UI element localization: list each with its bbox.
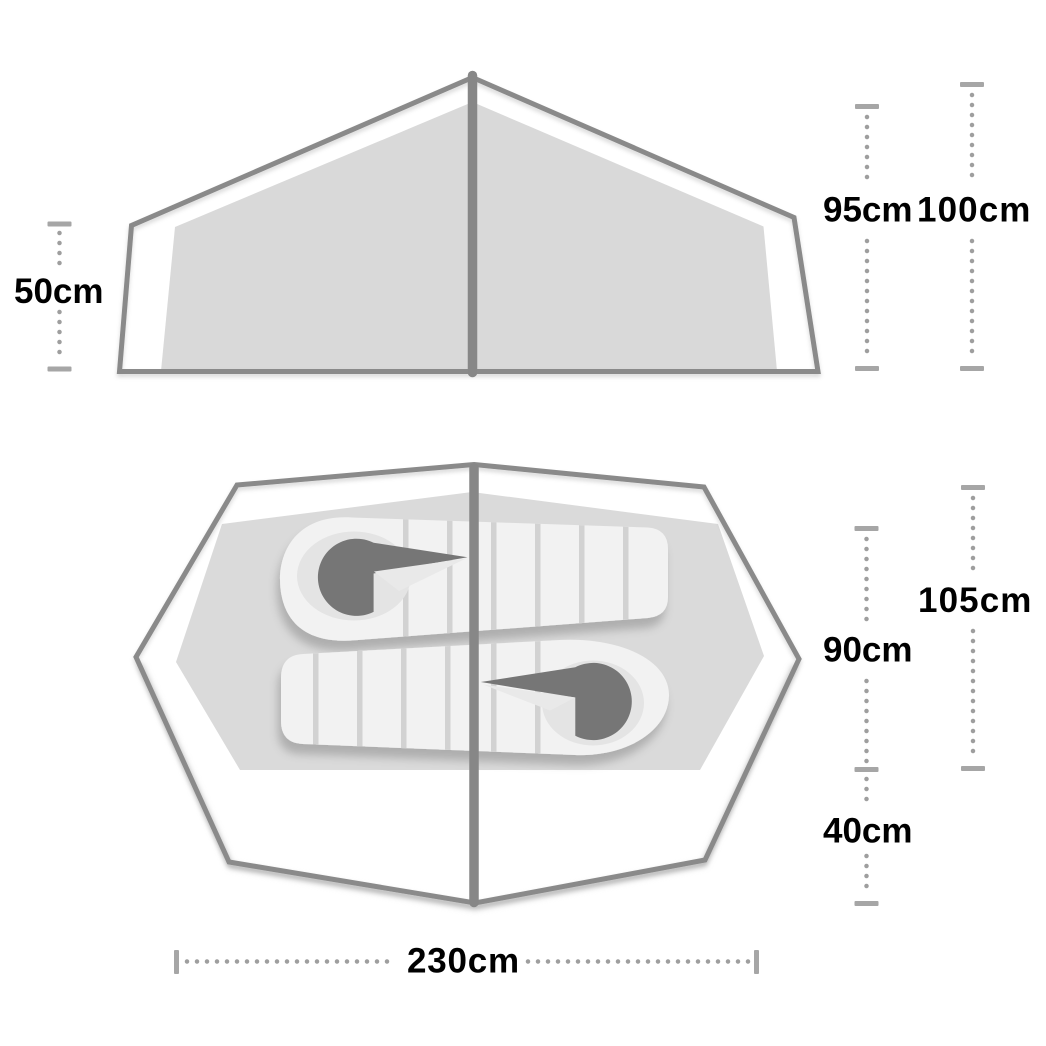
svg-text:90cm: 90cm — [823, 631, 913, 670]
svg-text:50cm: 50cm — [14, 272, 104, 311]
svg-text:230cm: 230cm — [407, 942, 520, 981]
svg-text:95cm: 95cm — [823, 191, 913, 230]
svg-text:105cm: 105cm — [918, 581, 1032, 620]
svg-text:40cm: 40cm — [823, 812, 913, 851]
svg-text:100cm: 100cm — [917, 191, 1031, 230]
